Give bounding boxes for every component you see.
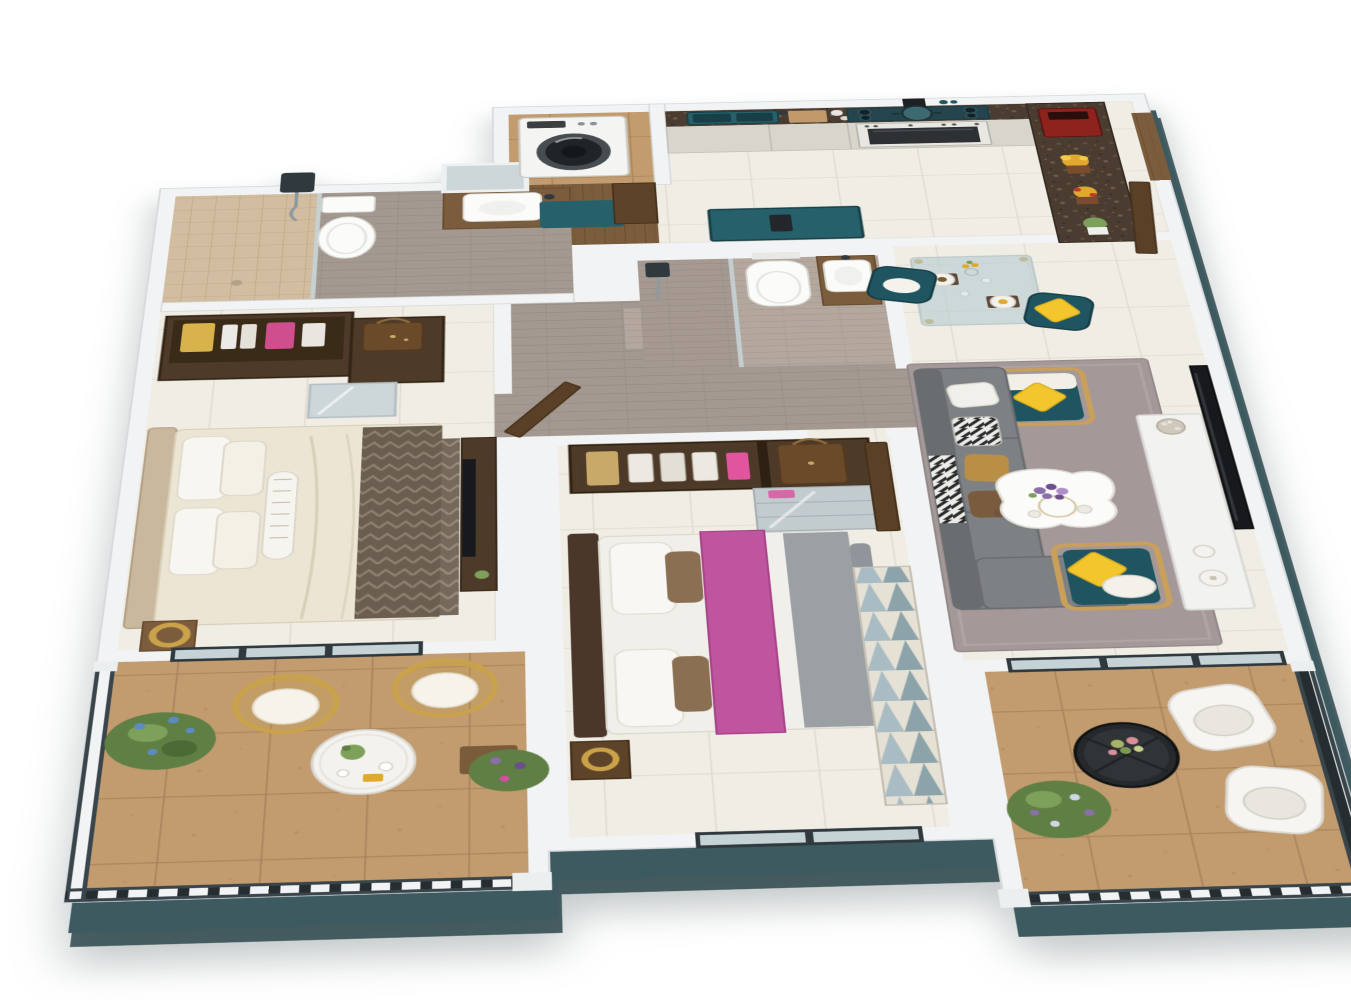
shoe-pink [726,452,751,480]
rail-cap-west [93,661,118,672]
sofa-pillow-stripe [951,417,1002,447]
gold-wire-chair-2 [394,659,495,717]
heels-1 [628,454,654,483]
bag-tan [586,451,620,486]
dining-vase [964,268,978,275]
heels-3 [692,452,718,481]
cooking-pot [901,106,933,121]
bed1-bolster [261,471,298,559]
cutting-board [788,110,828,123]
floorplan-stage [0,0,1351,1000]
bed1-throw [354,426,442,619]
bath2-toilet [745,260,812,306]
bath2-shower-head [645,262,670,277]
dining-chair-east [1023,292,1095,332]
dining-chair-west [865,265,938,304]
rail-cap-3 [998,889,1031,908]
floorplan-svg [38,87,1351,965]
bed2-accent-pillow [665,551,704,603]
toilet-tank [322,196,375,213]
shower-fixture-icon [280,172,316,192]
bedroom1-tv [462,459,476,557]
handbag-pink [265,322,296,349]
coffee-table [985,467,1123,529]
laundry-cupboard [613,183,658,224]
masterbath-shower-floor [162,193,321,302]
laundry-mat [539,200,624,229]
leaning-mirror [444,163,527,192]
bedside-table2 [571,741,631,780]
heels-2 [660,453,686,482]
bath2-flush-panel [751,252,800,260]
sofa-pillow-white [945,382,1000,408]
bed2-pillow [609,542,676,615]
rail-cap-2 [1289,661,1316,672]
apartment-plan [38,87,1351,965]
rail-cap-corner [512,872,552,891]
shoes-white [220,324,238,349]
scene [0,0,1351,1000]
handbag-white [301,323,326,347]
handbag-yellow [180,323,216,352]
white-tub-chair-2 [1226,764,1323,836]
hall-floor-b [644,363,905,433]
